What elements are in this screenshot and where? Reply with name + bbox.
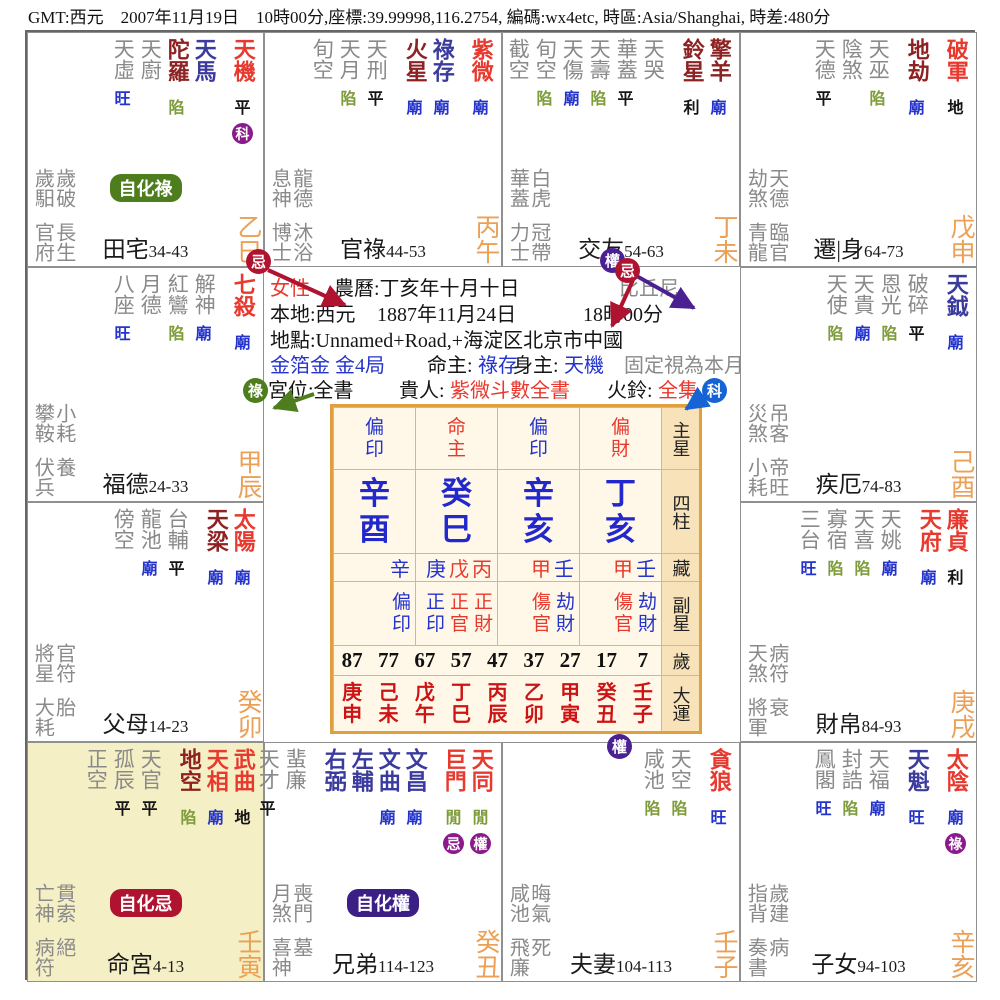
palace-wei[interactable]: 截空旬空陷天傷廟天壽陷華蓋平天哭鈴星利擎羊廟華蓋白虎力士冠帶交友54-63丁未 [502,32,740,267]
star-name: 八座 [112,273,133,315]
palace-age-range: 34-43 [149,242,189,261]
palace-yin[interactable]: 正空孤辰平天官平地空陷天相廟武曲地亡神貫索病符絕自化忌命宮4-13壬寅 [27,742,264,982]
star-column: 正空 [83,748,108,790]
deity-name: 指背 [745,883,765,923]
deity-name: 龍德 [290,168,310,208]
star-column: 鳳閣旺 [811,748,836,819]
substar: 偏印 [392,592,411,635]
star-brightness: 平 [259,795,275,819]
star-brightness: 廟 [710,94,726,118]
decade-pillar: 庚申 [334,682,370,726]
star-cluster: 天才平蜚廉右弼左輔文曲廟文昌廟巨門閒忌天同閒權 [253,748,493,854]
star-brightness: 廟 [947,329,963,353]
star-name: 天姚 [879,508,900,550]
pillar-ganzhi-text: 丁亥 [605,476,636,547]
row-label: 歲 [661,645,699,675]
palace-footer: 夫妻104-113 [503,945,739,979]
palace-footer: 子女94-103 [741,945,976,979]
decade-pillar: 壬子 [625,682,661,726]
star-column: 陀羅陷 [164,38,189,118]
star-name: 旬空 [534,38,555,80]
palace-stem-branch: 癸丑 [473,929,499,979]
star-name: 華蓋 [615,38,636,80]
star-column: 天壽陷 [586,38,611,109]
decade-pillar: 癸丑 [588,682,624,726]
star-name: 天壽 [588,38,609,80]
star-column: 太陽廟 [230,508,255,588]
row-label-text: 歲 [672,652,690,670]
palace-name: 父母 [103,712,149,737]
star-column: 天機平科 [230,38,255,144]
palace-shen[interactable]: 天德平陰煞天巫陷地劫廟破軍地劫煞天德青龍臨官遷|身64-73戊申 [740,32,977,267]
star-brightness: 地 [234,804,250,828]
palace-chou[interactable]: 天才平蜚廉右弼左輔文曲廟文昌廟巨門閒忌天同閒權月煞喪門喜神墓自化權兄弟114-1… [264,742,502,982]
star-cluster: 旬空天月陷天刑平火星廟祿存廟紫微廟 [307,38,493,118]
pillar-topgod-text: 偏印 [365,417,384,460]
pillar-substars: 正印正官正財 [415,581,497,645]
star-brightness: 廟 [141,555,157,579]
star-column: 天使陷 [823,273,848,344]
star-brightness: 利 [947,564,963,588]
star-name: 恩光 [879,273,900,315]
natal-transform-badge: 祿 [945,833,966,854]
palace-footer: 福德24-33 [28,465,263,499]
luck-age: 27 [552,648,588,673]
star-brightness: 陷 [827,320,843,344]
star-column: 寡宿陷 [823,508,848,579]
deity-name: 咸池 [507,883,527,923]
star-column: 破軍地 [943,38,968,118]
deity-name: 天德 [766,168,786,208]
substar: 劫財 [638,592,657,635]
natal-transform-badge: 科 [232,123,253,144]
palace-footer: 父母14-23 [28,705,263,739]
pillar-hidden-stems: 庚戊丙 [415,553,497,581]
palace-age-range: 84-93 [862,717,902,736]
hidden-stem: 辛 [390,553,410,582]
star-cluster: 咸池陷天空陷貪狼旺 [638,748,731,828]
star-cluster: 三台旺寡宿陷天喜陷天姚廟天府廟廉貞利 [794,508,968,588]
info-text: 火鈴: [607,374,653,403]
star-column: 天才平 [255,748,280,819]
star-brightness: 旺 [114,320,130,344]
star-name: 蜚廉 [284,748,305,790]
pillar-hidden-stems: 甲壬 [497,553,579,581]
star-column: 天巫陷 [865,38,890,109]
star-brightness: 閒 [472,804,488,828]
star-column: 台輔平 [164,508,189,579]
luck-age: 87 [334,648,370,673]
deity-name: 災煞 [745,403,765,443]
star-column: 破碎平 [904,273,929,344]
star-brightness: 廟 [854,320,870,344]
star-cluster: 傍空龍池廟台輔平天梁廟太陽廟 [108,508,255,588]
star-brightness: 地 [947,94,963,118]
deity-group-middle: 災煞吊客 [745,403,788,443]
star-brightness: 陷 [536,85,552,109]
star-name: 陰煞 [840,38,861,80]
decade-pillar: 丁巳 [443,682,479,726]
star-name: 天使 [825,273,846,315]
star-column: 天府廟 [916,508,941,588]
star-brightness: 廟 [406,94,422,118]
hidden-stem: 甲 [613,553,633,582]
star-brightness: 廟 [920,564,936,588]
pillar-topgod: 偏印 [333,407,415,469]
deity-group-middle: 華蓋白虎 [507,168,550,208]
palace-stem-branch: 己酉 [948,449,974,499]
star-brightness: 閒 [445,804,461,828]
luck-age: 37 [516,648,552,673]
star-name: 鈴星 [680,38,702,82]
pillar-substars: 傷官劫財 [497,581,579,645]
deity-name: 華蓋 [507,168,527,208]
deity-group-middle: 攀鞍小耗 [32,403,75,443]
deity-group-middle: 劫煞天德 [745,168,788,208]
pillar-ganzhi-text: 癸巳 [441,476,472,547]
decade-pillar: 己未 [370,682,406,726]
chart-board: 天虛旺天廚陀羅陷天馬天機平科歲馹歲破官府長生自化祿田宅34-43乙巳旬空天月陷天… [25,30,975,980]
palace-stem-branch: 丙午 [473,214,499,264]
flying-transform-badge: 權 [607,734,632,759]
star-brightness: 廟 [472,94,488,118]
star-brightness: 旺 [815,795,831,819]
star-name: 天才 [257,748,278,790]
star-column: 天虛旺 [110,38,135,109]
decade-pillar: 甲寅 [552,682,588,726]
star-column: 龍池廟 [137,508,162,579]
palace-stem-branch: 戊申 [948,214,974,264]
star-brightness: 陷 [168,94,184,118]
row-label-text: 四柱 [672,494,690,530]
substar: 傷官 [532,592,551,635]
star-brightness: 平 [815,85,831,109]
palace-name: 夫妻 [570,952,616,977]
deity-name: 息神 [269,168,289,208]
star-brightness: 陷 [671,795,687,819]
palace-name: 官祿 [340,237,386,262]
info-text: 紫微斗數全書 [450,374,570,403]
self-transform-pill: 自化忌 [110,889,182,917]
row-label: 副星 [661,581,699,645]
palace-zi[interactable]: 咸池陷天空陷貪狼旺咸池晦氣飛廉死夫妻104-113壬子 [502,742,740,982]
star-cluster: 正空孤辰平天官平地空陷天相廟武曲地 [81,748,255,828]
deity-name: 月煞 [269,883,289,923]
natal-transform-badge: 權 [470,833,491,854]
star-brightness: 廟 [947,804,963,828]
star-column: 文曲廟 [375,748,400,828]
star-brightness: 廟 [563,85,579,109]
deity-name: 劫煞 [745,168,765,208]
palace-chen[interactable]: 八座旺月德紅鸞陷解神廟七殺廟攀鞍小耗伏兵養福德24-33甲辰 [27,267,264,502]
pillar-ganzhi-text: 辛亥 [523,476,554,547]
substar: 正印 [426,592,445,635]
star-name: 廉貞 [944,508,966,552]
star-name: 破軍 [944,38,966,82]
star-name: 天相 [204,748,226,792]
star-name: 天刑 [365,38,386,80]
star-name: 天廚 [139,38,160,80]
star-name: 文昌 [403,748,425,792]
star-brightness: 廟 [869,795,885,819]
star-name: 天哭 [642,38,663,80]
star-name: 三台 [798,508,819,550]
pillar-topgod-text: 命主 [447,417,466,460]
pillar-topgod: 命主 [415,407,497,469]
star-column: 陰煞 [838,38,863,80]
luck-age: 77 [370,648,406,673]
star-name: 地劫 [905,38,927,82]
star-brightness: 平 [141,795,157,819]
star-brightness: 平 [168,555,184,579]
deity-group-middle: 歲馹歲破 [32,168,75,208]
star-brightness: 平 [114,795,130,819]
palace-xu[interactable]: 三台旺寡宿陷天喜陷天姚廟天府廟廉貞利天煞病符將軍衰財帛84-93庚戌 [740,502,977,742]
star-brightness: 廟 [908,94,924,118]
star-column: 旬空 [309,38,334,80]
star-name: 天月 [338,38,359,80]
star-brightness: 陷 [854,555,870,579]
pillar-ganzhi: 丁亥 [579,469,661,553]
star-column: 天月陷 [336,38,361,109]
star-name: 解神 [193,273,214,315]
star-column: 七殺廟 [230,273,255,353]
star-name: 左輔 [349,748,371,792]
star-cluster: 天使陷天貴廟恩光陷破碎平天鉞廟 [821,273,968,353]
palace-name: 兄弟 [332,952,378,977]
star-brightness: 廟 [234,329,250,353]
star-name: 天巫 [867,38,888,80]
star-name: 寡宿 [825,508,846,550]
palace-you[interactable]: 天使陷天貴廟恩光陷破碎平天鉞廟災煞吊客小耗帝旺疾厄74-83己酉 [740,267,977,502]
substar: 正官 [450,592,469,635]
info-text: 農曆:丁亥年十月十日 [334,272,520,301]
info-text: 天機 [564,349,604,378]
substar: 正財 [474,592,493,635]
flying-transform-badge: 科 [702,378,727,403]
star-column: 天貴廟 [850,273,875,344]
pillar-substars: 傷官劫財 [579,581,661,645]
star-brightness: 利 [683,94,699,118]
star-column: 武曲地 [230,748,255,828]
star-name: 天空 [669,748,690,790]
star-column: 蜚廉 [282,748,307,790]
palace-age-range: 44-53 [386,242,426,261]
pillar-ganzhi: 辛亥 [497,469,579,553]
star-column: 巨門閒忌 [441,748,466,854]
star-column: 天福廟 [865,748,890,819]
flying-transform-badge: 忌 [615,258,640,283]
star-brightness: 旺 [114,85,130,109]
palace-si[interactable]: 天虛旺天廚陀羅陷天馬天機平科歲馹歲破官府長生自化祿田宅34-43乙巳 [27,32,264,267]
self-transform-pill: 自化祿 [110,174,182,202]
star-column: 天官平 [137,748,162,819]
pillar-substars: 偏印 [333,581,415,645]
star-name: 紫微 [469,38,491,82]
star-name: 天德 [813,38,834,80]
star-cluster: 鳳閣旺封誥陷天福廟天魁旺太陰廟祿 [809,748,968,854]
star-column: 解神廟 [191,273,216,344]
deity-name: 小耗 [53,403,73,443]
star-name: 七殺 [231,273,253,317]
pillar-hidden-stems: 辛 [333,553,415,581]
palace-hai[interactable]: 鳳閣旺封誥陷天福廟天魁旺太陰廟祿指背歲建奏書病子女94-103辛亥 [740,742,977,982]
pillar-hidden-stems: 甲壬 [579,553,661,581]
row-label: 藏 [661,553,699,581]
star-column: 右弼 [321,748,346,792]
decade-pillar: 戊午 [407,682,443,726]
deity-name: 亡神 [32,883,52,923]
deity-name: 白虎 [528,168,548,208]
star-column: 紫微廟 [468,38,493,118]
flying-transform-badge: 祿 [243,378,268,403]
star-column: 恩光陷 [877,273,902,344]
star-column: 封誥陷 [838,748,863,819]
palace-age-range: 104-113 [616,957,672,976]
palace-name: 田宅 [103,237,149,262]
star-column: 紅鸞陷 [164,273,189,344]
palace-footer: 兄弟114-123 [265,945,501,979]
star-name: 陀羅 [165,38,187,82]
row-label: 主星 [661,407,699,469]
flying-transform-badge: 忌 [246,249,271,274]
palace-stem-branch: 辛亥 [948,929,974,979]
substar: 傷官 [614,592,633,635]
palace-footer: 財帛84-93 [741,705,976,739]
info-text: 女性 [270,272,310,301]
star-name: 太陽 [231,508,253,552]
star-column: 天鉞廟 [943,273,968,353]
row-label-text: 大運 [672,686,690,722]
star-name: 太陰 [944,748,966,792]
star-name: 天魁 [905,748,927,792]
star-name: 鳳閣 [813,748,834,790]
star-brightness: 陷 [180,804,196,828]
pillar-ganzhi-text: 辛酉 [359,476,390,547]
info-text: 本地:西元 [270,298,356,327]
star-name: 天福 [867,748,888,790]
star-name: 正空 [85,748,106,790]
palace-stem-branch: 壬子 [711,929,737,979]
star-column: 三台旺 [796,508,821,579]
star-name: 天貴 [852,273,873,315]
star-name: 天傷 [561,38,582,80]
star-name: 祿存 [430,38,452,82]
palace-name: 子女 [811,952,857,977]
luck-age: 7 [625,648,661,673]
palace-name: 遷|身 [813,237,864,262]
row-label: 大運 [661,675,699,731]
star-name: 截空 [507,38,528,80]
star-brightness: 陷 [827,555,843,579]
star-name: 火星 [403,38,425,82]
deity-name: 官符 [53,643,73,683]
star-column: 天空陷 [667,748,692,819]
pillar-topgod-text: 偏財 [611,417,630,460]
star-cluster: 天德平陰煞天巫陷地劫廟破軍地 [809,38,968,118]
palace-stem-branch: 壬寅 [235,929,261,979]
deity-group-middle: 月煞喪門 [269,883,312,923]
star-column: 天馬 [191,38,216,82]
star-name: 右弼 [322,748,344,792]
star-column: 天同閒權 [468,748,493,854]
star-name: 破碎 [906,273,927,315]
star-name: 天梁 [204,508,226,552]
star-name: 台輔 [166,508,187,550]
row-label: 四柱 [661,469,699,553]
star-name: 天府 [917,508,939,552]
hidden-stem: 甲 [531,553,551,582]
star-name: 月德 [139,273,160,315]
palace-wu[interactable]: 旬空天月陷天刑平火星廟祿存廟紫微廟息神龍德博士沐浴官祿44-53丙午 [264,32,502,267]
palace-stem-branch: 甲辰 [235,449,261,499]
gmt-header: GMT:西元 2007年11月19日 10時00分,座標:39.99998,11… [28,3,831,28]
star-name: 旬空 [311,38,332,80]
star-column: 天魁旺 [904,748,929,828]
info-text: 貴人: [399,374,445,403]
deity-name: 晦氣 [528,883,548,923]
star-name: 天機 [231,38,253,82]
deity-group-middle: 咸池晦氣 [507,883,550,923]
star-column: 天刑平 [363,38,388,109]
star-cluster: 天虛旺天廚陀羅陷天馬天機平科 [108,38,255,144]
pillar-topgod-text: 偏印 [529,417,548,460]
star-column: 太陰廟祿 [943,748,968,854]
star-brightness: 廟 [207,804,223,828]
star-column: 天喜陷 [850,508,875,579]
palace-footer: 官祿44-53 [265,230,501,264]
substar: 劫財 [556,592,575,635]
pillar-ganzhi: 癸巳 [415,469,497,553]
star-column: 旬空陷 [532,38,557,109]
self-transform-pill: 自化權 [347,889,419,917]
star-brightness: 陷 [842,795,858,819]
star-brightness: 廟 [881,555,897,579]
star-name: 武曲 [231,748,253,792]
palace-footer: 命宮4-13 [28,945,263,979]
palace-age-range: 74-83 [862,477,902,496]
star-brightness: 廟 [433,94,449,118]
star-column: 擎羊廟 [706,38,731,118]
star-column: 傍空 [110,508,135,550]
star-name: 紅鸞 [166,273,187,315]
info-text: 18時00分 [583,298,663,327]
decade-pillars: 庚申己未戊午丁巳丙辰乙卯甲寅癸丑壬子 [333,675,661,731]
star-column: 咸池陷 [640,748,665,819]
palace-name: 命宮 [107,952,153,977]
info-text: 宮位:全書 [268,374,354,403]
star-name: 擎羊 [707,38,729,82]
palace-footer: 田宅34-43 [28,230,263,264]
star-column: 地劫廟 [904,38,929,118]
star-cluster: 八座旺月德紅鸞陷解神廟七殺廟 [108,273,255,353]
luck-ages: 87776757473727177 [333,645,661,675]
deity-name: 貫索 [53,883,73,923]
star-column: 文昌廟 [402,748,427,828]
star-column: 天哭 [640,38,665,80]
star-column: 天姚廟 [877,508,902,579]
deity-group-middle: 將星官符 [32,643,75,683]
palace-mao[interactable]: 傍空龍池廟台輔平天梁廟太陽廟將星官符大耗胎父母14-23癸卯 [27,502,264,742]
star-column: 八座旺 [110,273,135,344]
deity-group-middle: 息神龍德 [269,168,312,208]
star-name: 封誥 [840,748,861,790]
star-column: 左輔 [348,748,373,792]
decade-pillar: 丙辰 [479,682,515,726]
star-brightness: 旺 [710,804,726,828]
star-name: 天馬 [192,38,214,82]
star-column: 鈴星利 [679,38,704,118]
